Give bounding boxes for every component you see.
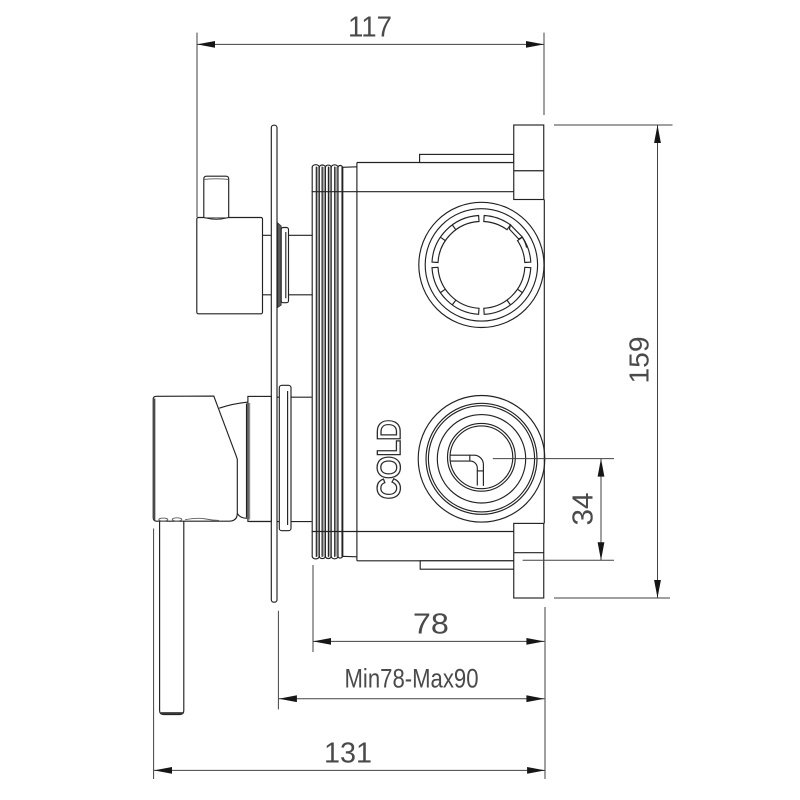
svg-text:Min78-Max90: Min78-Max90	[345, 664, 479, 694]
svg-text:COLD: COLD	[372, 420, 407, 499]
svg-text:78: 78	[413, 609, 449, 641]
svg-text:117: 117	[348, 12, 392, 44]
svg-text:159: 159	[624, 337, 655, 384]
svg-text:131: 131	[324, 738, 372, 770]
svg-text:34: 34	[568, 493, 600, 526]
